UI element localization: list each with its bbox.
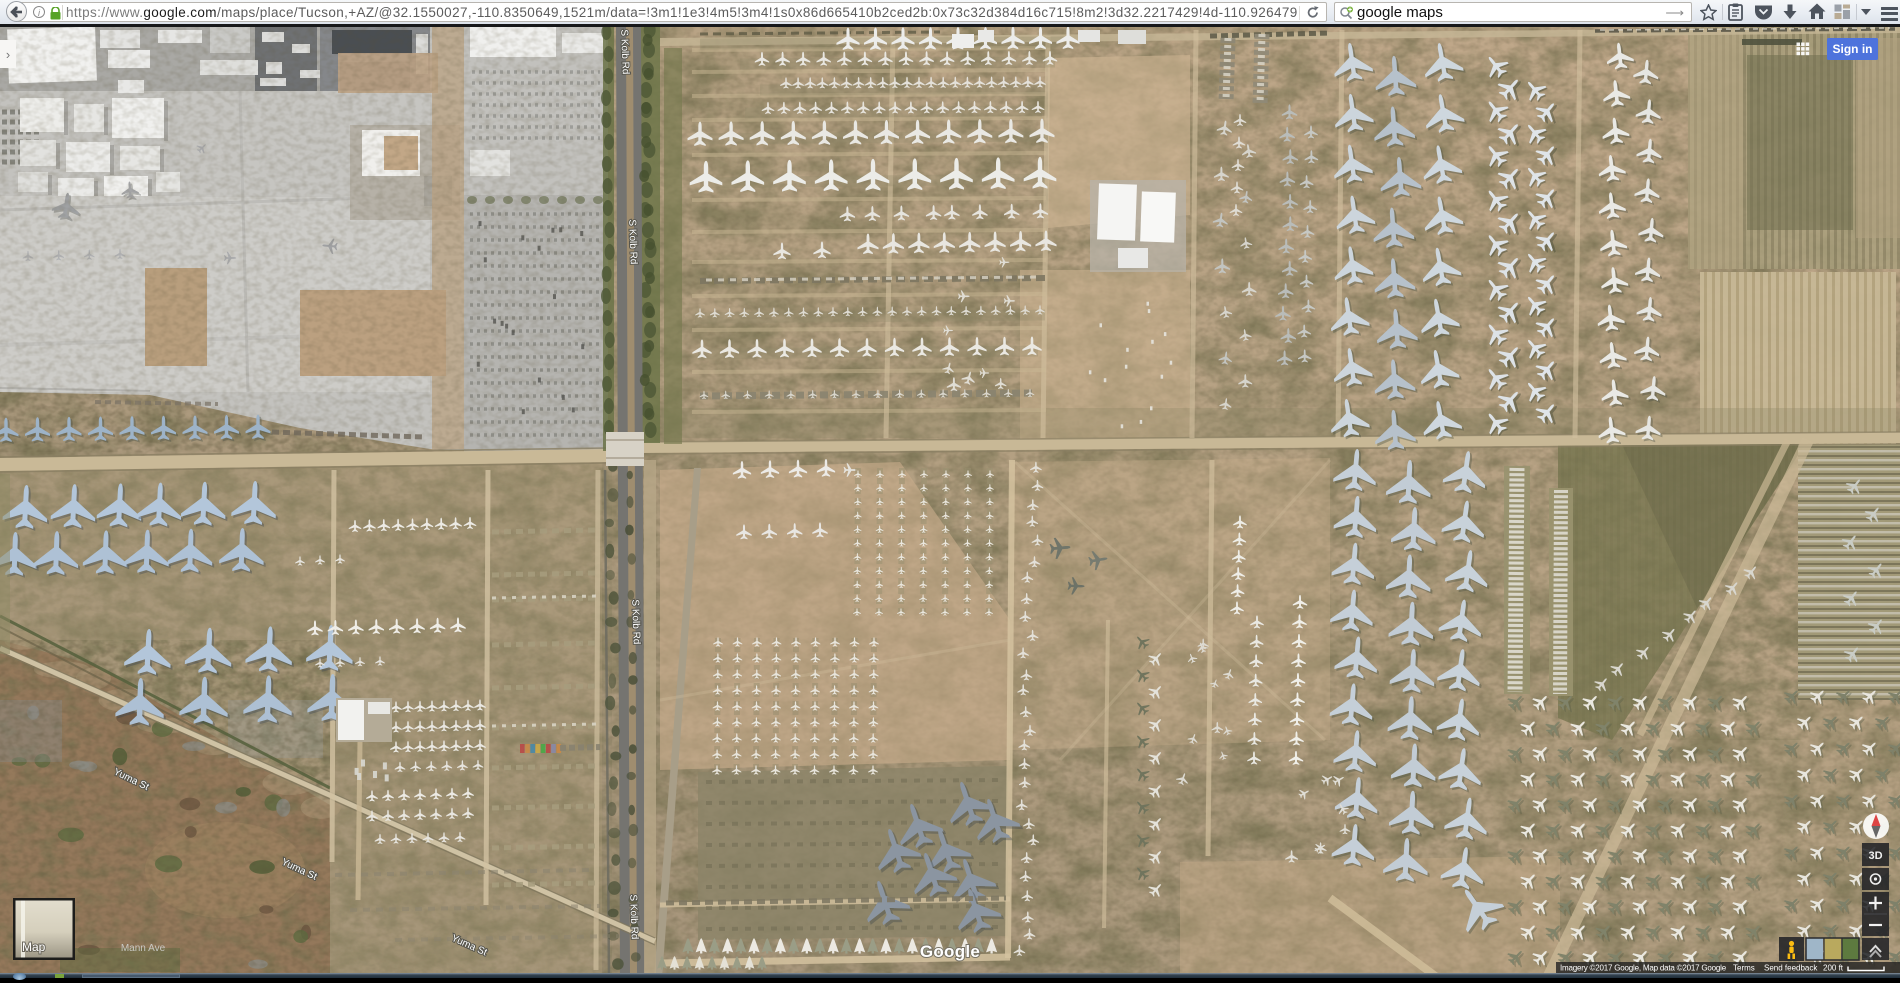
svg-text:S Kolb Rd: S Kolb Rd	[627, 894, 640, 939]
svg-text:Google: Google	[920, 942, 980, 961]
svg-text:S Kolb Rd: S Kolb Rd	[626, 219, 639, 264]
svg-text:Mann Ave: Mann Ave	[121, 943, 166, 954]
svg-text:Send feedback: Send feedback	[1764, 964, 1818, 973]
svg-text:›: ›	[6, 47, 10, 62]
svg-text:Terms: Terms	[1733, 964, 1755, 973]
svg-text:Imagery ©2017 Google, Map data: Imagery ©2017 Google, Map data ©2017 Goo…	[1560, 964, 1727, 973]
svg-text:200 ft: 200 ft	[1823, 964, 1844, 973]
svg-text:Map: Map	[22, 940, 46, 954]
svg-text:Sign in: Sign in	[1833, 42, 1873, 56]
svg-text:3D: 3D	[1868, 850, 1882, 862]
svg-text:S Kolb Rd: S Kolb Rd	[629, 599, 642, 644]
svg-text:S Kolb Rd: S Kolb Rd	[618, 29, 631, 74]
